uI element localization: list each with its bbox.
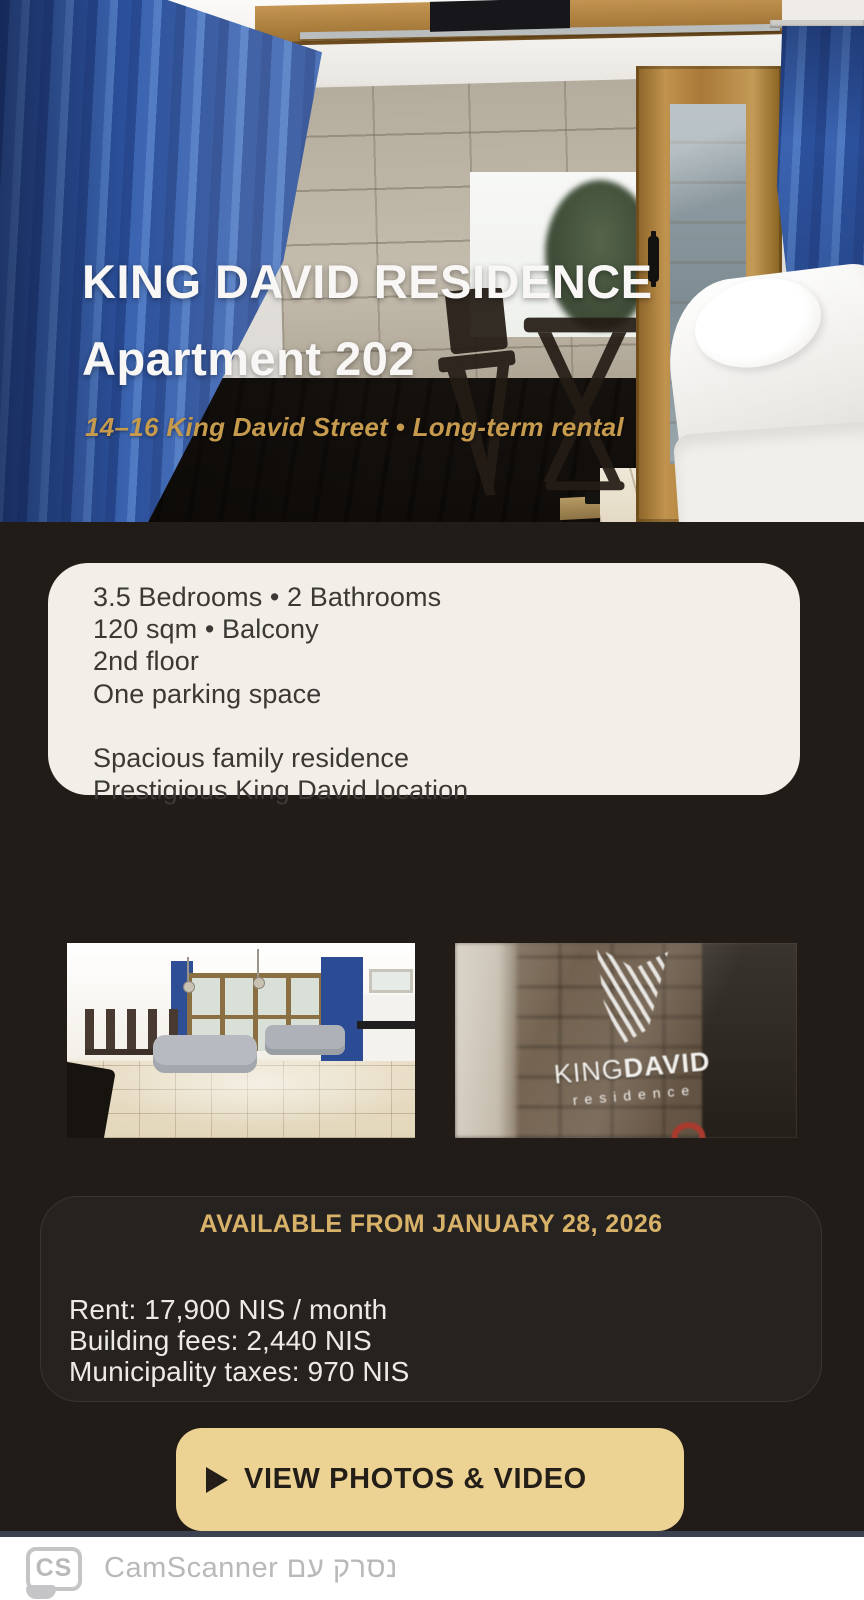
gray-sofa — [265, 1025, 345, 1055]
kitchen-cabinets — [363, 995, 415, 1065]
king-david-logo: KINGDAVID residence — [507, 943, 753, 1138]
view-photos-button[interactable]: VIEW PHOTOS & VIDEO — [176, 1428, 684, 1531]
camscanner-logo-text: CS — [36, 1554, 73, 1583]
living-room-window-rail — [187, 1015, 329, 1019]
detail-line: 120 sqm • Balcony — [93, 613, 760, 645]
camscanner-watermark-text: נסרק עם CamScanner — [104, 1552, 398, 1585]
detail-line: 2nd floor — [93, 645, 760, 677]
property-title-line2: Apartment 202 — [82, 335, 842, 382]
camscanner-logo-icon: CS — [26, 1547, 82, 1591]
municipality-taxes-line: Municipality taxes: 970 NIS — [69, 1356, 821, 1387]
kitchen-counter — [357, 1021, 415, 1029]
view-photos-button-label: VIEW PHOTOS & VIDEO — [244, 1463, 587, 1496]
rent-line: Rent: 17,900 NIS / month — [69, 1294, 821, 1325]
availability-panel: AVAILABLE FROM JANUARY 28, 2026 Rent: 17… — [40, 1196, 822, 1402]
logo-word-david: DAVID — [622, 1046, 711, 1083]
hero-text-overlay: KING DAVID RESIDENCE Apartment 202 14–16… — [82, 258, 842, 443]
camscanner-logo-page-curl — [26, 1585, 56, 1599]
striped-shield-icon — [590, 947, 669, 1048]
building-fees-line: Building fees: 2,440 NIS — [69, 1325, 821, 1356]
play-icon — [206, 1467, 228, 1493]
availability-heading: AVAILABLE FROM JANUARY 28, 2026 — [41, 1210, 821, 1239]
scanned-rental-flyer: KING DAVID RESIDENCE Apartment 202 14–16… — [0, 0, 864, 1600]
detail-line-spacer — [93, 710, 760, 742]
pendant-light — [257, 949, 259, 979]
detail-line: Prestigious King David location — [93, 774, 760, 806]
king-david-brand-photo: KINGDAVID residence — [455, 943, 797, 1138]
pendant-light — [187, 957, 189, 983]
details-card: 3.5 Bedrooms • 2 Bathrooms 120 sqm • Bal… — [48, 563, 800, 795]
detail-line: Spacious family residence — [93, 742, 760, 774]
detail-line: One parking space — [93, 678, 760, 710]
hero-photo: KING DAVID RESIDENCE Apartment 202 14–16… — [0, 0, 864, 522]
living-room-photo — [67, 943, 415, 1138]
red-ring-icon — [670, 1121, 706, 1138]
property-title-line1: KING DAVID RESIDENCE — [82, 258, 842, 305]
gray-sofa — [153, 1035, 257, 1073]
logo-word-king: KING — [553, 1054, 625, 1090]
detail-line: 3.5 Bedrooms • 2 Bathrooms — [93, 581, 760, 613]
hero-track-box — [430, 0, 570, 32]
camscanner-watermark-bar: CS נסרק עם CamScanner — [0, 1537, 864, 1600]
kitchen-window — [369, 969, 413, 993]
property-subtitle: 14–16 King David Street • Long-term rent… — [85, 412, 842, 443]
price-lines: Rent: 17,900 NIS / month Building fees: … — [69, 1294, 821, 1387]
